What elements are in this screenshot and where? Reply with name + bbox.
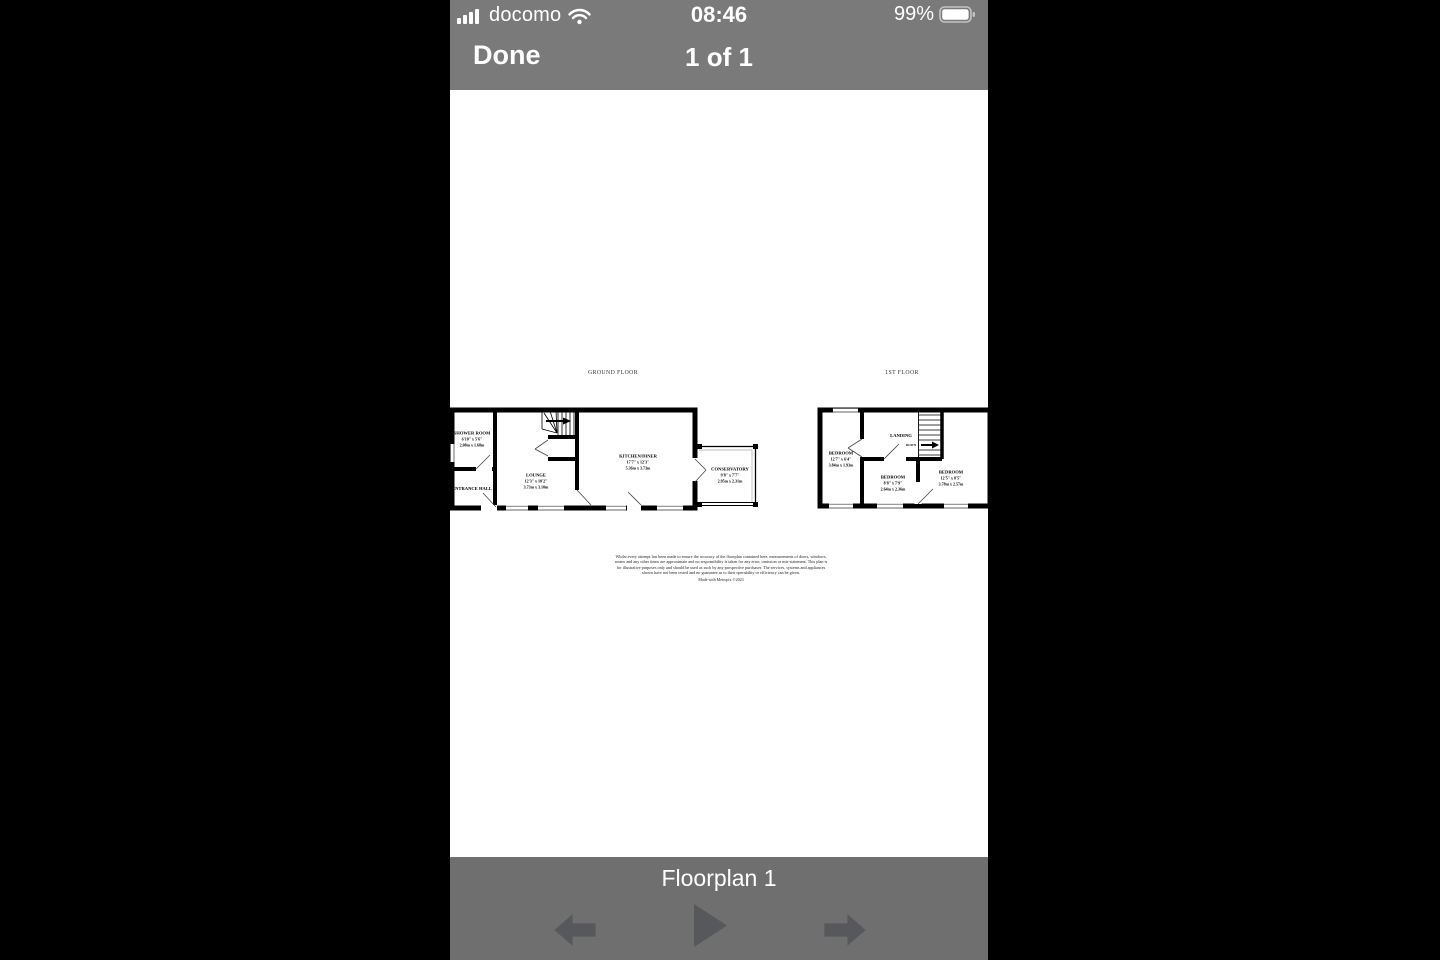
- room-label-landing: LANDING: [890, 433, 912, 439]
- top-chrome: docomo 08:46 99%: [450, 0, 988, 90]
- room-label-entrance-hall: ENTRANCE HALL: [452, 486, 492, 492]
- navigation-bar: Done 1 of 1: [450, 32, 988, 90]
- play-icon: [694, 904, 727, 947]
- room-label-shower-room: SHOWER ROOM 6'10" x 5'6" 2.08m x 1.68m: [454, 431, 491, 448]
- phone-screen: docomo 08:46 99%: [450, 0, 988, 960]
- battery-percent: 99%: [894, 3, 934, 26]
- disclaimer-block: Whilst every attempt has been made to en…: [614, 554, 828, 582]
- photo-caption: Floorplan 1: [450, 865, 988, 892]
- photo-viewer[interactable]: GROUND FLOOR 1ST FLOOR: [450, 90, 988, 857]
- bottom-toolbar: Floorplan 1: [450, 857, 988, 960]
- next-photo-button[interactable]: [823, 913, 867, 950]
- disclaimer-text: Whilst every attempt has been made to en…: [614, 554, 828, 576]
- stairs-down-label: DOWN: [906, 443, 916, 447]
- room-label-lounge: LOUNGE 12'3" x 10'2" 3.73m x 3.10m: [524, 473, 549, 490]
- room-label-conservatory: CONSERVATORY 9'8" x 7'7" 2.95m x 2.31m: [711, 467, 749, 484]
- status-right-cluster: 99%: [894, 3, 977, 26]
- status-bar: docomo 08:46 99%: [450, 0, 988, 32]
- slideshow-play-button[interactable]: [694, 904, 727, 950]
- next-arrow-icon: [823, 913, 867, 947]
- room-label-bedroom-middle: BEDROOM 8'8" x 7'9" 2.64m x 2.36m: [881, 475, 906, 492]
- room-label-bedroom-left: BEDROOM 12'7" x 6'4" 3.84m x 1.93m: [829, 451, 854, 468]
- made-with-credit: Made with Metropix ©2023: [614, 577, 828, 582]
- previous-arrow-icon: [553, 913, 597, 947]
- previous-photo-button[interactable]: [553, 913, 597, 950]
- screenshot-stage: docomo 08:46 99%: [0, 0, 1440, 960]
- room-label-kitchen-diner: KITCHEN/DINER 17'7" x 12'3" 5.36m x 3.73…: [619, 454, 657, 471]
- room-label-bedroom-right: BEDROOM 12'5" x 8'5" 3.78m x 2.57m: [939, 470, 964, 487]
- battery-icon: [939, 5, 977, 24]
- page-indicator: 1 of 1: [450, 42, 988, 73]
